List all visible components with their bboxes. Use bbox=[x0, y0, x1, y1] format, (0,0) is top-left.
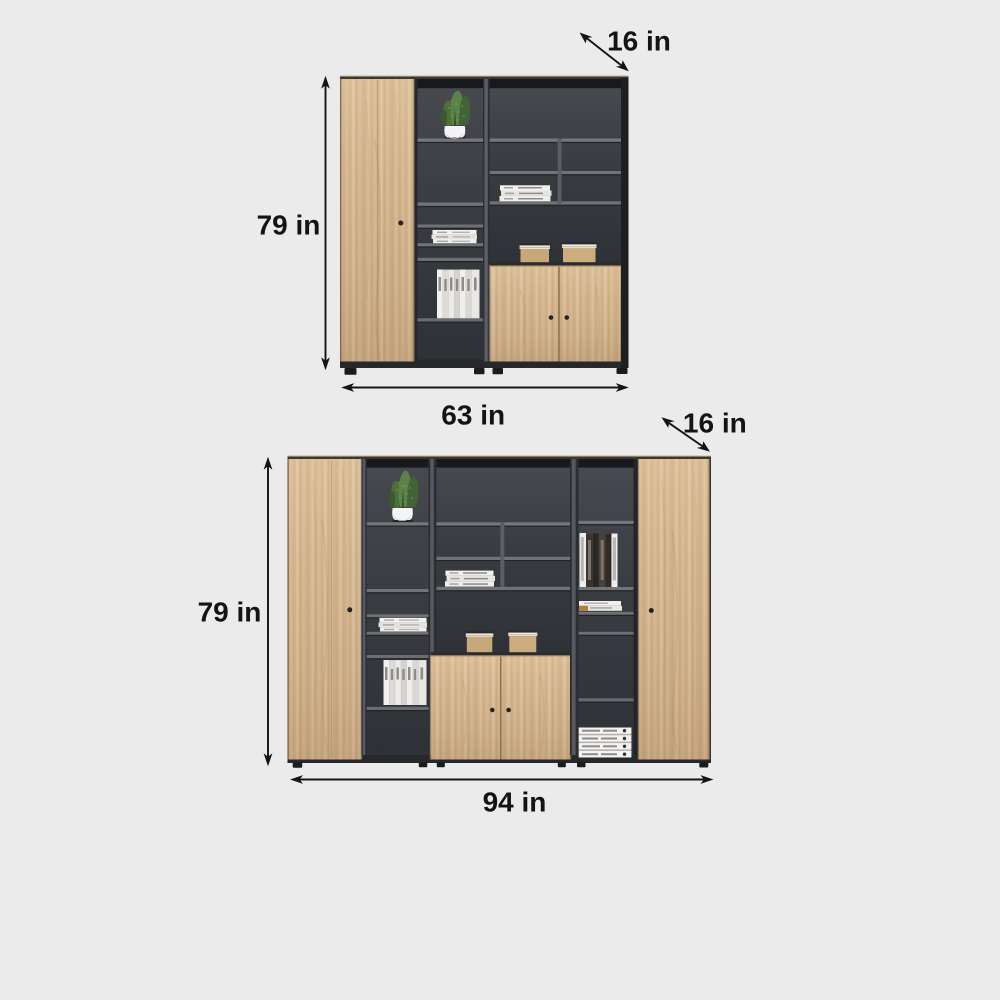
svg-text:63 in: 63 in bbox=[441, 400, 505, 431]
svg-text:16 in: 16 in bbox=[683, 408, 747, 439]
svg-text:16 in: 16 in bbox=[607, 26, 671, 57]
svg-text:79 in: 79 in bbox=[257, 210, 321, 241]
svg-text:79 in: 79 in bbox=[198, 597, 262, 628]
svg-text:94 in: 94 in bbox=[483, 787, 547, 818]
